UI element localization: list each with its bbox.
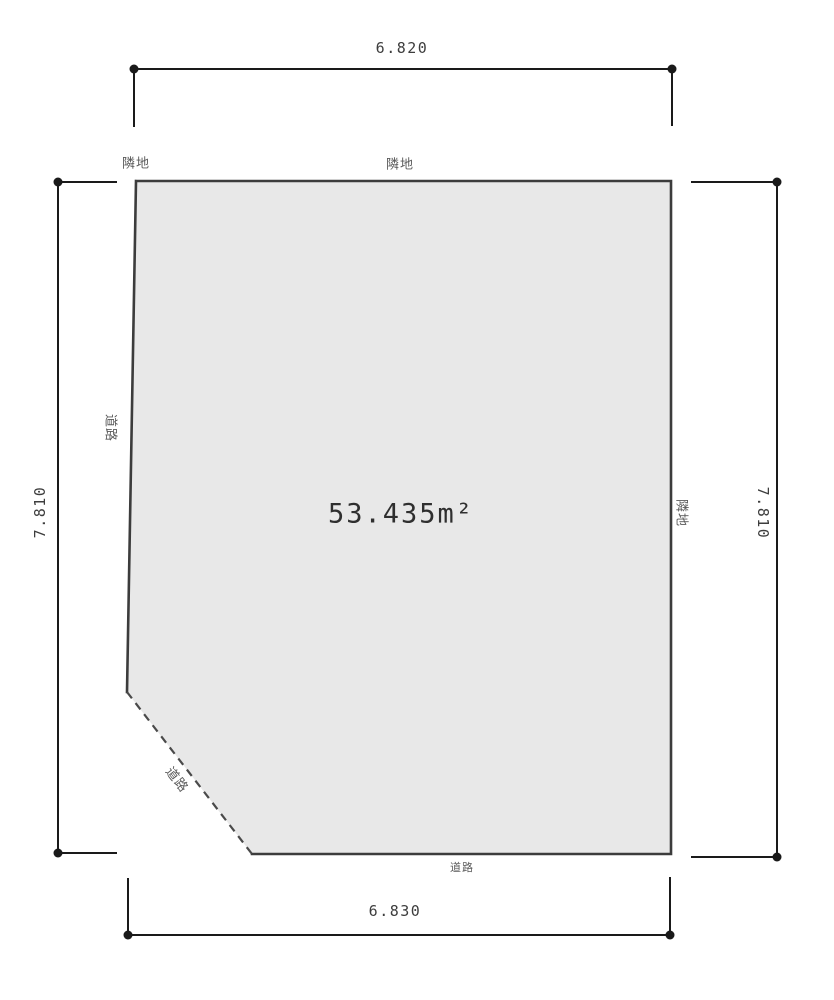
dimension-dot bbox=[124, 931, 133, 940]
dimension-line-top bbox=[134, 69, 672, 127]
adjacent-land-label-top-center: 隣地 bbox=[386, 154, 414, 173]
dimension-dot bbox=[54, 178, 63, 187]
dimension-dot bbox=[773, 178, 782, 187]
dimension-dot bbox=[666, 931, 675, 940]
dimension-value-left: 7.810 bbox=[31, 486, 49, 539]
parcel-area-label: 53.435m² bbox=[328, 499, 474, 530]
road-label-bottom: 道路 bbox=[450, 859, 474, 875]
dimension-line-left bbox=[58, 182, 117, 853]
dimension-dot bbox=[668, 65, 677, 74]
road-label-left-side: 道路 bbox=[103, 414, 122, 442]
adjacent-land-label-right-side: 隣地 bbox=[674, 499, 693, 527]
dimension-dot bbox=[773, 853, 782, 862]
dimension-value-right: 7.810 bbox=[754, 487, 772, 540]
adjacent-land-label-top-left: 隣地 bbox=[122, 153, 150, 172]
dimension-value-bottom: 6.830 bbox=[369, 902, 422, 920]
dimension-dot bbox=[130, 65, 139, 74]
plot-diagram-canvas: 6.820 6.830 7.810 7.810 53.435m² 隣地 隣地 道… bbox=[0, 0, 834, 1000]
dimension-value-top: 6.820 bbox=[376, 39, 429, 57]
dimension-dot bbox=[54, 849, 63, 858]
